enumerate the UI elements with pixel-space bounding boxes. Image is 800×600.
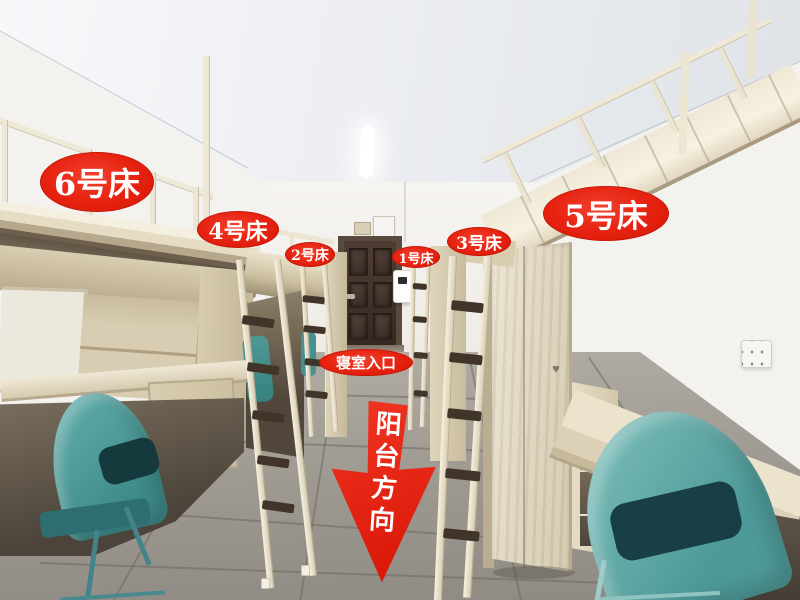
entrance-door bbox=[344, 241, 396, 347]
power-outlet bbox=[741, 340, 772, 368]
bed3-label: 3号床 bbox=[447, 227, 511, 256]
wall-conduit bbox=[404, 182, 406, 242]
ladder-step bbox=[414, 390, 428, 397]
wall-mounted-device bbox=[393, 270, 412, 303]
shelf-edge bbox=[80, 346, 196, 357]
ladder-step bbox=[414, 352, 428, 359]
bed6-label: 6号床 bbox=[40, 152, 154, 212]
bed2-label: 2号床 bbox=[285, 242, 335, 267]
ladder-step bbox=[413, 316, 427, 323]
device-screen bbox=[398, 277, 407, 284]
bed1-label: 1号床 bbox=[392, 246, 440, 268]
electric-meter-box bbox=[373, 216, 395, 237]
doorbell-panel bbox=[354, 222, 371, 235]
guardrail-post bbox=[502, 152, 532, 205]
wardrobe-door-seam bbox=[523, 246, 525, 568]
ladder-foot bbox=[261, 578, 270, 589]
wardrobe-floor-shadow bbox=[493, 566, 575, 579]
guardrail-post bbox=[576, 116, 606, 169]
ladder-step bbox=[413, 283, 427, 290]
bed6-corner-post bbox=[203, 56, 210, 240]
dorm-room-photo: ♥ ♥ bbox=[0, 0, 800, 600]
door-panel bbox=[349, 248, 368, 276]
guardrail-post bbox=[2, 120, 8, 205]
bed4-label: 4号床 bbox=[197, 211, 279, 248]
heart-handle-icon: ♥ bbox=[549, 362, 563, 376]
door-panel bbox=[349, 313, 368, 340]
door-panel bbox=[373, 248, 392, 276]
door-panel bbox=[373, 282, 392, 308]
ladder-foot bbox=[301, 565, 310, 576]
door-panel bbox=[373, 313, 392, 340]
guardrail-post bbox=[649, 80, 679, 133]
bed5-label: 5号床 bbox=[543, 186, 669, 241]
door-handle bbox=[346, 294, 355, 299]
entrance-label: 寝室入口 bbox=[319, 349, 413, 376]
guardrail-post bbox=[718, 47, 748, 100]
wardrobe bbox=[492, 242, 572, 572]
ceiling-light bbox=[359, 126, 376, 179]
